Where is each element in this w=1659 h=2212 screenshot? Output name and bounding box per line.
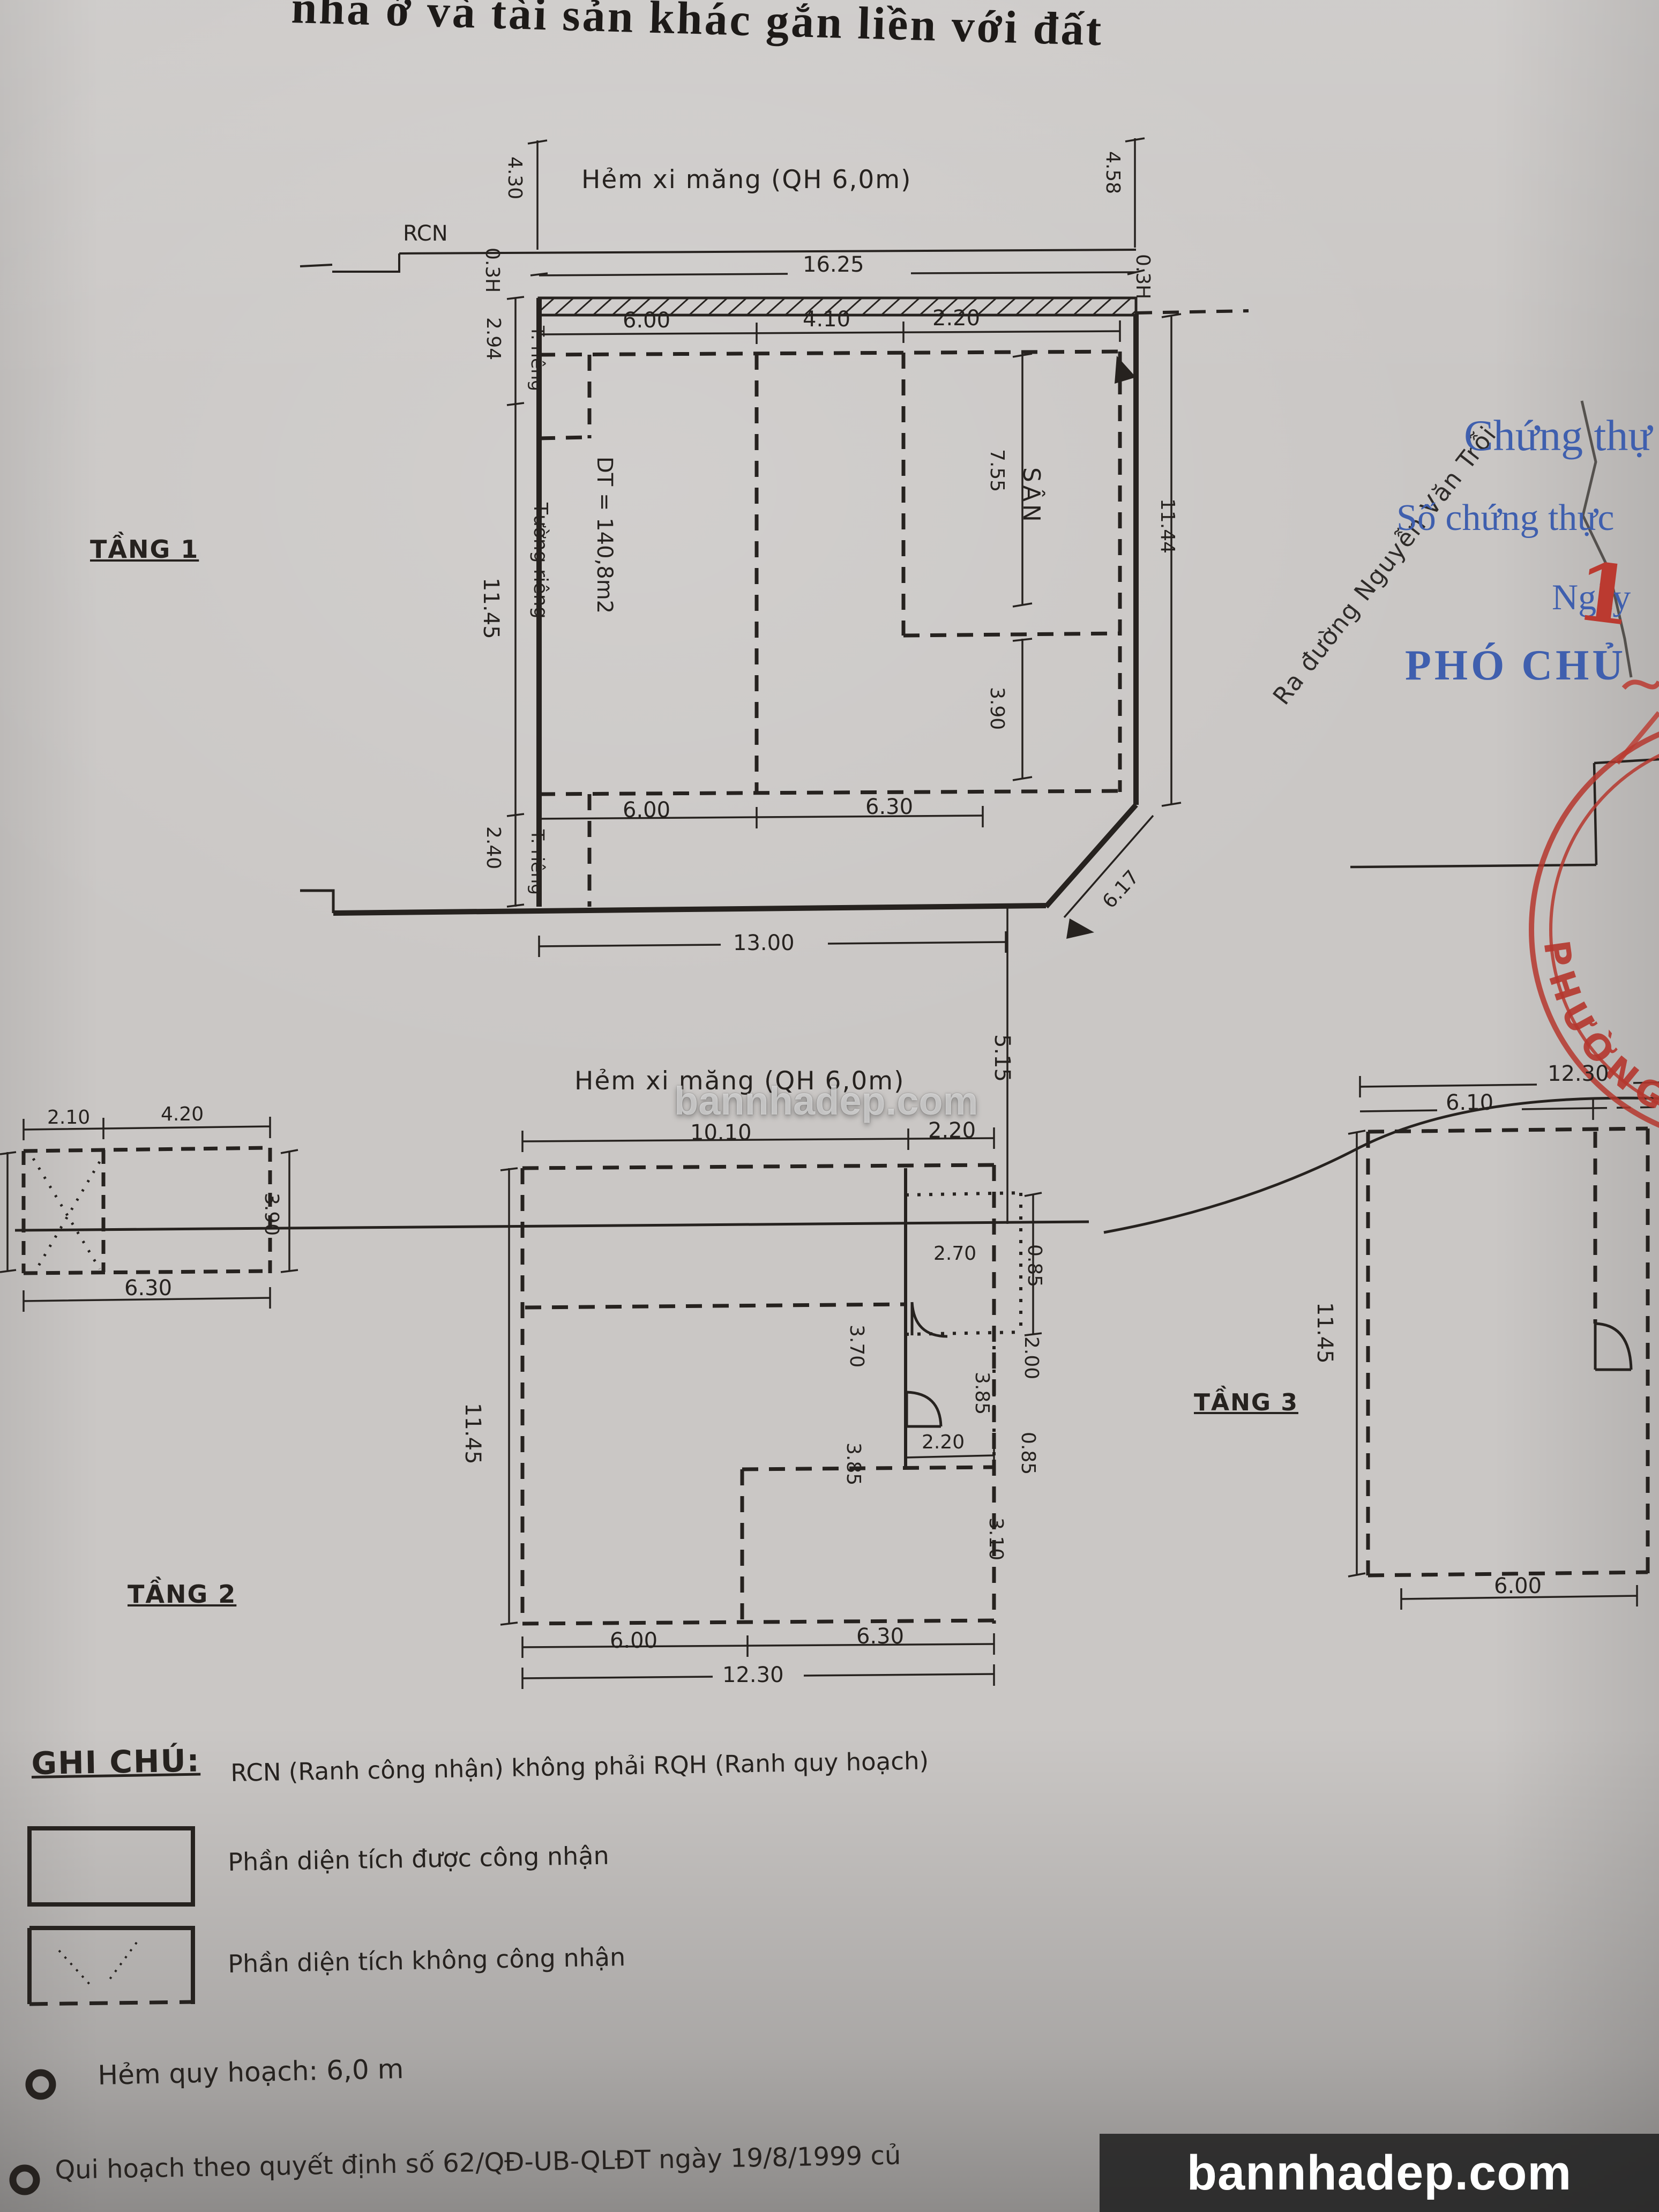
dim-16-25: 16.25 bbox=[803, 254, 864, 275]
floor3-door-arc bbox=[1595, 1324, 1631, 1370]
dim-2-40: 2.40 bbox=[483, 826, 503, 869]
dim-2-20-f2mid: 2.20 bbox=[922, 1433, 965, 1452]
dim-3-90-f1: 3.90 bbox=[987, 687, 1006, 730]
dim-10-10: 10.10 bbox=[690, 1122, 752, 1144]
dim-6-00-f2: 6.00 bbox=[610, 1630, 657, 1651]
dim-2-10: 2.10 bbox=[47, 1108, 90, 1127]
dim-6-30-f1: 6.30 bbox=[865, 796, 913, 818]
dim-6-10: 6.10 bbox=[1446, 1092, 1493, 1114]
dim-6-30-annex: 6.30 bbox=[124, 1277, 172, 1299]
dim-6-00-bot: 6.00 bbox=[623, 799, 670, 821]
dim-4-20: 4.20 bbox=[161, 1105, 204, 1124]
dim-2-70: 2.70 bbox=[933, 1244, 976, 1264]
dim-2-94: 2.94 bbox=[483, 317, 503, 360]
cert-line2: Số chứng thực bbox=[1396, 499, 1614, 537]
dim-12-30-f2: 12.30 bbox=[722, 1664, 784, 1686]
floor2-solid-walls bbox=[906, 1168, 947, 1469]
legend-swatches bbox=[13, 1828, 193, 2192]
watermark-banner: bannhadep.com bbox=[1100, 2134, 1659, 2212]
dim-6-30-f2: 6.30 bbox=[856, 1626, 904, 1647]
dim-11-44: 11.44 bbox=[1157, 498, 1177, 554]
dim-3-90-r: 3.90 bbox=[261, 1193, 281, 1236]
rcn-label: RCN bbox=[403, 223, 448, 244]
dim-4-58: 4.58 bbox=[1103, 151, 1122, 194]
street-label-top: Hẻm xi măng (QH 6,0m) bbox=[581, 167, 911, 192]
handwritten-digit: 1 bbox=[1572, 551, 1638, 638]
dim-11-45-f1: 11.45 bbox=[480, 578, 502, 639]
dim-7-55: 7.55 bbox=[987, 449, 1006, 492]
floor2-balcony-dotted bbox=[906, 1193, 1021, 1469]
dim-3-85-c: 3.85 bbox=[843, 1443, 863, 1485]
dim-4-10: 4.10 bbox=[803, 309, 850, 330]
floor2-dimension-lines bbox=[500, 1127, 1042, 1689]
dim-0-3h-left: 0.3H bbox=[482, 248, 502, 293]
dim-0-85-b: 0.85 bbox=[1018, 1432, 1037, 1475]
legend-unrecognized-label: Phần diện tích không công nhận bbox=[228, 1945, 625, 1976]
dim-3-70: 3.70 bbox=[847, 1325, 866, 1367]
dim-11-45-f2: 11.45 bbox=[462, 1403, 483, 1464]
neighbour-boundary-lines bbox=[1350, 759, 1659, 867]
dim-2-20-f1: 2.20 bbox=[932, 308, 980, 329]
dim-6-00-f3: 6.00 bbox=[1494, 1575, 1542, 1597]
dim-4-30: 4.30 bbox=[505, 156, 524, 199]
dim-2-00: 2.00 bbox=[1021, 1336, 1041, 1379]
floor3-title: TẦNG 3 bbox=[1194, 1391, 1298, 1415]
dim-3-85-r: 3.85 bbox=[972, 1372, 991, 1415]
dim-6-00-top: 6.00 bbox=[623, 310, 670, 331]
dim-11-45-f3: 11.45 bbox=[1314, 1302, 1335, 1364]
annex-dashed-structure bbox=[24, 1148, 270, 1273]
floor1-title: TẦNG 1 bbox=[90, 537, 199, 562]
dim-5-15: 5.15 bbox=[991, 1034, 1013, 1082]
dim-3-10: 3.10 bbox=[986, 1518, 1005, 1560]
scanned-cadastral-document: PHƯỜNG PH nhà ở và tài sản khác gắn liền… bbox=[0, 0, 1659, 2212]
dim-0-85-a: 0.85 bbox=[1025, 1244, 1044, 1287]
floor2-title: TẦNG 2 bbox=[128, 1582, 236, 1606]
legend-recognized-label: Phần diện tích được công nhận bbox=[228, 1843, 609, 1874]
cert-line1: Chứng thự bbox=[1464, 414, 1652, 458]
note-alley-width: Hẻm quy hoạch: 6,0 m bbox=[98, 2056, 404, 2089]
dim-13-00: 13.00 bbox=[733, 932, 795, 954]
wall-note-mid: Tường riêng bbox=[530, 503, 550, 619]
dim-2-20-f2top: 2.20 bbox=[928, 1120, 976, 1141]
annex-dotted-cross bbox=[33, 1159, 100, 1269]
floor1-dashed-structure bbox=[539, 352, 1120, 907]
wall-note-top: T. riêng bbox=[529, 326, 547, 391]
cert-line4: PHÓ CHỦ bbox=[1405, 644, 1626, 687]
dim-0-3h-right: 0.3H bbox=[1133, 254, 1152, 299]
watermark-center: bannhadep.com bbox=[674, 1081, 978, 1121]
watermark-banner-text: bannhadep.com bbox=[1187, 2145, 1572, 2201]
floor3-dashed-structure bbox=[1368, 1129, 1648, 1575]
notes-heading: GHI CHÚ: bbox=[31, 1745, 200, 1778]
floor3-dimension-lines bbox=[1348, 1076, 1659, 1610]
wall-note-bottom: T. riêng bbox=[529, 829, 547, 895]
yard-label: SÂN bbox=[1019, 467, 1043, 525]
dim-12-30-f3: 12.30 bbox=[1548, 1063, 1609, 1085]
area-label: DT = 140,8m2 bbox=[594, 457, 615, 614]
